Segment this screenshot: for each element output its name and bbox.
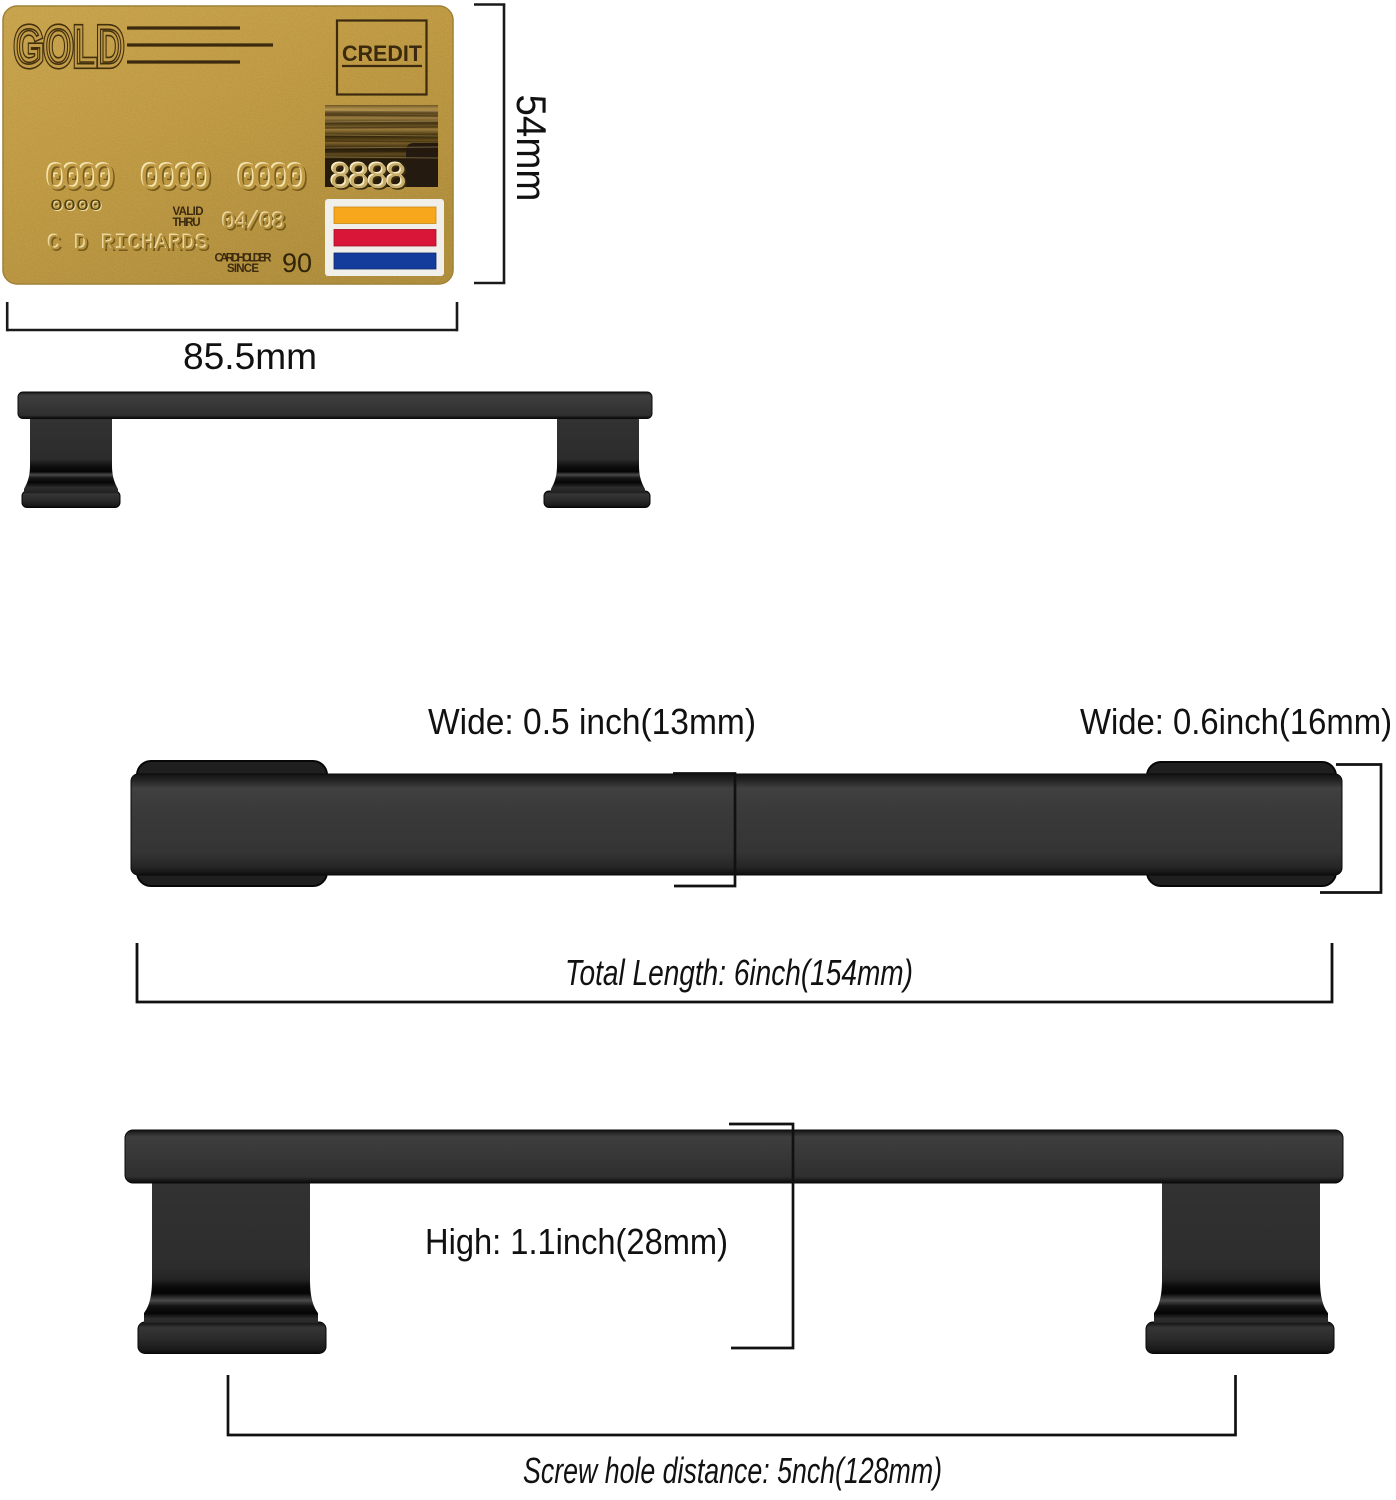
svg-text:GOLD: GOLD <box>14 15 124 79</box>
svg-text:Wide: 0.6inch(16mm): Wide: 0.6inch(16mm) <box>1080 701 1392 742</box>
svg-text:THRU: THRU <box>173 217 201 229</box>
svg-text:90: 90 <box>282 248 312 278</box>
svg-text:SINCE: SINCE <box>227 263 259 275</box>
svg-text:C D RICHARDS: C D RICHARDS <box>48 232 209 257</box>
svg-text:85.5mm: 85.5mm <box>183 336 317 377</box>
svg-text:CREDIT: CREDIT <box>342 41 423 66</box>
svg-text:Total Length: 6inch(154mm): Total Length: 6inch(154mm) <box>565 952 913 993</box>
svg-text:0000: 0000 <box>140 158 212 201</box>
svg-text:0000: 0000 <box>50 197 102 215</box>
svg-text:04/08: 04/08 <box>222 210 286 237</box>
svg-text:Screw hole distance: 5nch(128m: Screw hole distance: 5nch(128mm) <box>523 1450 942 1491</box>
svg-text:0000: 0000 <box>46 158 116 201</box>
svg-text:8888: 8888 <box>330 158 408 200</box>
svg-text:0000: 0000 <box>237 158 308 201</box>
svg-text:High: 1.1inch(28mm): High: 1.1inch(28mm) <box>425 1221 728 1262</box>
svg-text:Wide: 0.5 inch(13mm): Wide: 0.5 inch(13mm) <box>428 701 756 742</box>
svg-text:54mm: 54mm <box>508 95 555 202</box>
